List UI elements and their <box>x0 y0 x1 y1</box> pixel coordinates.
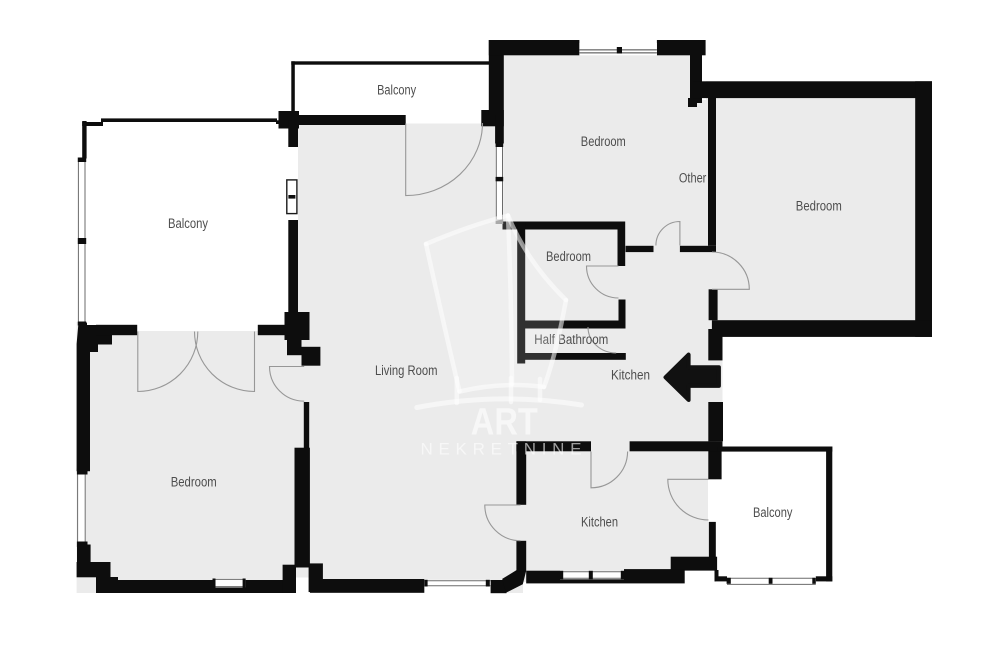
svg-text:Balcony: Balcony <box>168 216 208 231</box>
svg-text:ART: ART <box>471 402 538 444</box>
svg-text:Balcony: Balcony <box>753 505 793 520</box>
svg-text:NEKRETNINE: NEKRETNINE <box>421 439 582 458</box>
svg-text:Living Room: Living Room <box>375 363 438 378</box>
svg-text:Balcony: Balcony <box>377 83 416 98</box>
svg-text:Bedroom: Bedroom <box>546 249 591 264</box>
svg-text:Bedroom: Bedroom <box>796 199 842 214</box>
svg-text:Bedroom: Bedroom <box>171 475 217 490</box>
svg-text:Bedroom: Bedroom <box>581 134 626 149</box>
svg-text:Kitchen: Kitchen <box>581 514 618 529</box>
svg-text:Kitchen: Kitchen <box>611 368 650 383</box>
svg-text:Other: Other <box>679 170 707 185</box>
